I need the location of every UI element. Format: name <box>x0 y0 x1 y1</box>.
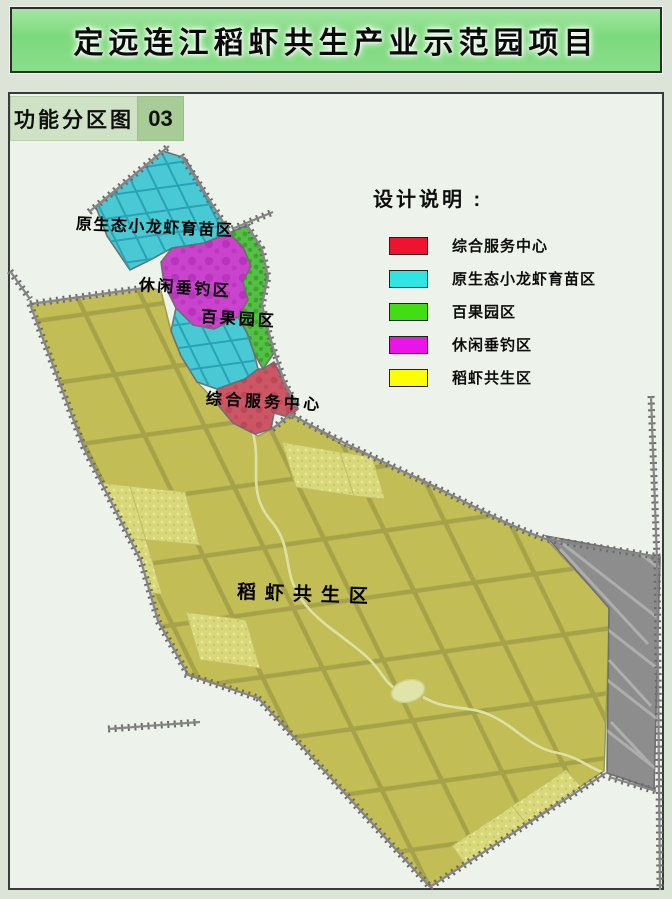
zone-label-orchard: 百果园区 <box>200 303 277 332</box>
legend-title: 设计说明 : <box>373 183 596 212</box>
legend: 设计说明 : 综合服务中心 原生态小龙虾育苗区 百果园区 休闲垂钓区 稻虾共生区 <box>373 183 596 401</box>
legend-label-service-center: 综合服务中心 <box>452 235 548 256</box>
subtitle-label: 功能分区图 <box>10 96 137 141</box>
legend-swatch-service-center <box>389 237 428 255</box>
legend-swatch-rice-shrimp <box>389 369 428 387</box>
map-subtitle: 功能分区图 03 <box>10 96 184 141</box>
legend-label-crayfish-nursery: 原生态小龙虾育苗区 <box>452 268 596 289</box>
legend-label-orchard: 百果园区 <box>452 301 516 322</box>
legend-row-crayfish-nursery: 原生态小龙虾育苗区 <box>389 269 596 288</box>
legend-label-rice-shrimp: 稻虾共生区 <box>452 367 532 388</box>
legend-swatch-crayfish-nursery <box>389 270 428 288</box>
legend-row-service-center: 综合服务中心 <box>389 236 596 255</box>
zone-label-rice-shrimp: 稻虾共生区 <box>237 577 378 609</box>
legend-row-fishing: 休闲垂钓区 <box>389 335 596 354</box>
legend-swatch-orchard <box>389 303 428 321</box>
legend-row-orchard: 百果园区 <box>389 302 596 321</box>
subtitle-number: 03 <box>137 96 184 141</box>
legend-swatch-fishing <box>389 336 428 354</box>
legend-row-rice-shrimp: 稻虾共生区 <box>389 368 596 387</box>
legend-label-fishing: 休闲垂钓区 <box>452 334 532 355</box>
